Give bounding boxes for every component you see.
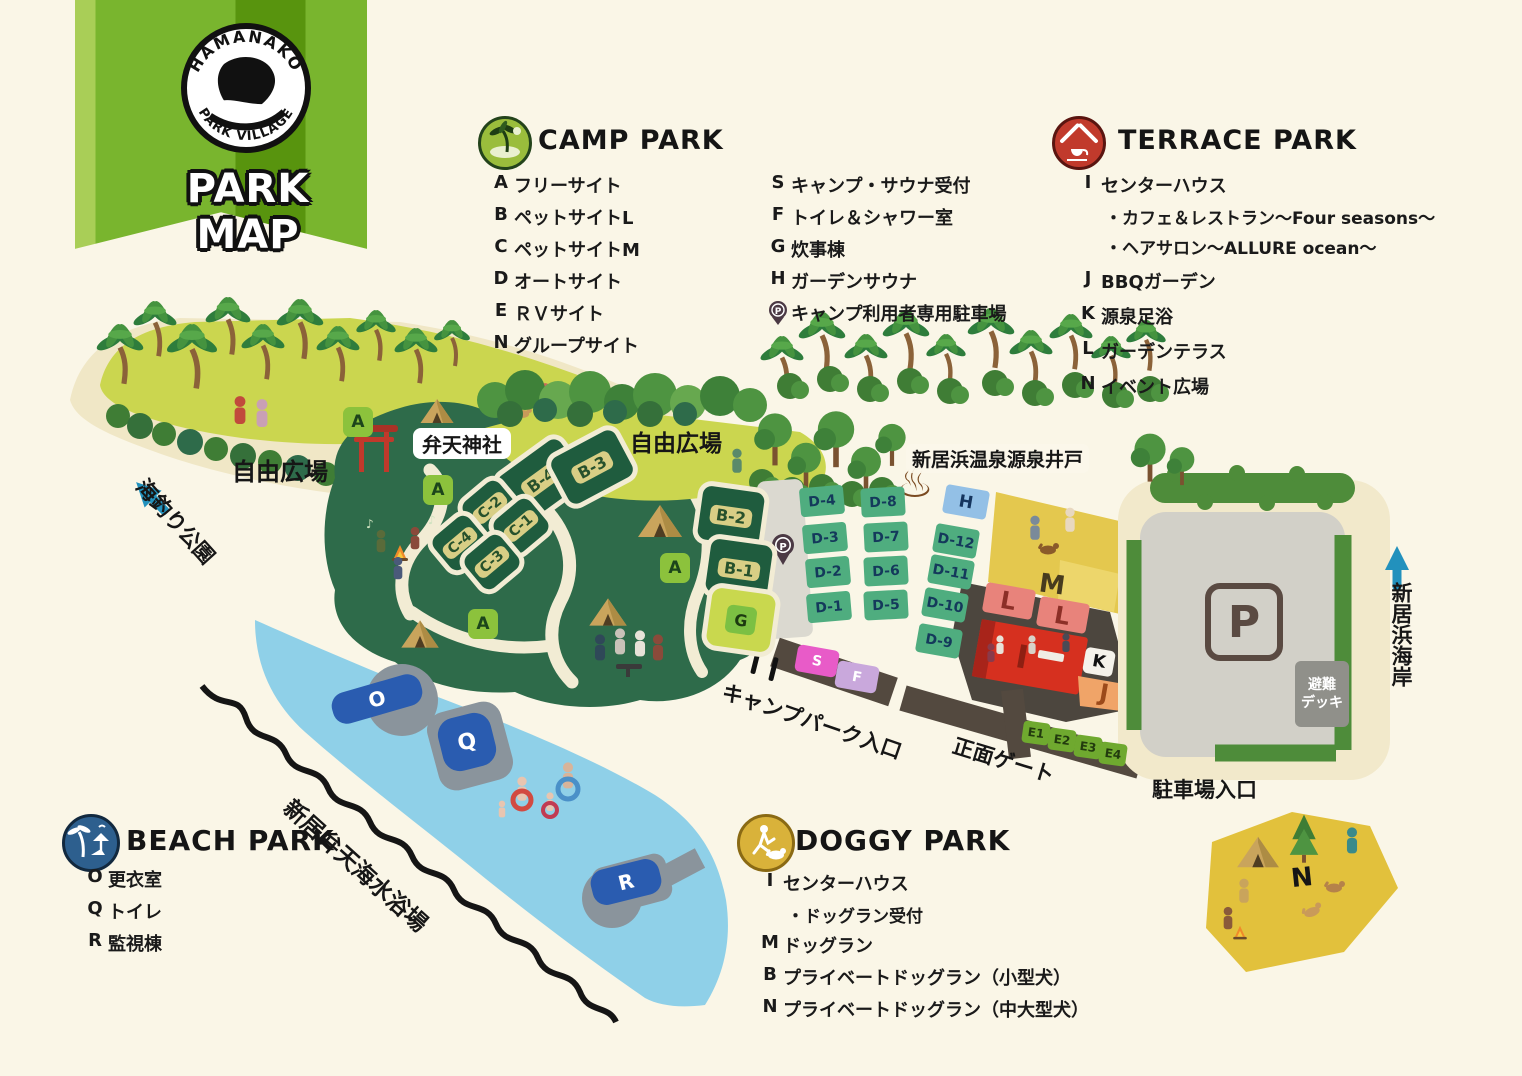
- beach-park-list: O更衣室 Qトイレ R監視棟: [82, 866, 162, 962]
- site-tile-d6: D-6: [863, 555, 908, 586]
- beach-park-icon: [62, 814, 120, 872]
- doggy-park-list: Iセンターハウス ・ドッグラン受付 Mドッグラン Bプライベートドッグラン（小型…: [757, 870, 1089, 1028]
- logo-lake-shape: [218, 57, 275, 107]
- legend-item: Bプライベートドッグラン（小型犬）: [757, 964, 1089, 990]
- label-hot-spring-well: 新居浜温泉源泉井戸: [906, 444, 1089, 473]
- site-tile-d1: D-1: [806, 591, 852, 624]
- legend-item: Fトイレ＆シャワー室: [765, 204, 1006, 230]
- legend-item: Lガーデンテラス: [1075, 338, 1435, 364]
- site-tile-d8: D-8: [860, 486, 905, 517]
- legend-item: Nプライベートドッグラン（中大型犬）: [757, 996, 1089, 1022]
- legend-item: G炊事棟: [765, 236, 1006, 262]
- terrace-park-title: TERRACE PARK: [1118, 125, 1357, 156]
- label-plaza-center: 自由広場: [630, 424, 722, 458]
- legend-item: Nグループサイト: [488, 332, 640, 358]
- parking-pin-icon: P: [765, 300, 791, 326]
- label-plaza-left: 自由広場: [232, 452, 328, 487]
- site-parcel-g: G: [705, 587, 776, 653]
- doggy-park-icon: [737, 814, 795, 872]
- site-badge-a: A: [660, 553, 690, 583]
- beach-park-title: BEACH PARK: [126, 824, 335, 857]
- area-letter-m: M: [1037, 568, 1067, 601]
- site-badge-e4: E4: [1098, 741, 1128, 767]
- site-tile-d7: D-7: [863, 521, 908, 552]
- legend-item: Iセンターハウス: [757, 870, 1089, 896]
- legend-item: Iセンターハウス: [1075, 172, 1435, 198]
- evacuation-deck-badge: 避難デッキ: [1295, 661, 1349, 727]
- svg-text:P: P: [775, 307, 782, 317]
- site-tile-d3: D-3: [802, 522, 848, 555]
- sitting-person: [732, 449, 741, 473]
- park-map-poster: ♪ ♪: [0, 0, 1522, 1076]
- area-letter-n: N: [1290, 862, 1315, 894]
- camp-park-title: CAMP PARK: [538, 125, 724, 156]
- site-badge-a: A: [468, 609, 498, 639]
- label-parking-entrance: 駐車場入口: [1152, 774, 1257, 804]
- legend-item: Sキャンプ・サウナ受付: [765, 172, 1006, 198]
- legend-item: K源泉足浴: [1075, 303, 1435, 329]
- music-note-icon: ♪: [428, 513, 436, 527]
- music-note-icon: ♪: [366, 517, 374, 531]
- legend-item: Dオートサイト: [488, 268, 640, 294]
- legend-item: P キャンプ利用者専用駐車場: [765, 300, 1006, 326]
- legend-subitem: ・カフェ＆レストラン〜Four seasons〜: [1105, 204, 1435, 229]
- poster-title: PARK MAP: [138, 166, 358, 258]
- terrace-park-list: Iセンターハウス ・カフェ＆レストラン〜Four seasons〜 ・ヘアサロン…: [1075, 172, 1435, 405]
- legend-item: BペットサイトL: [488, 204, 640, 230]
- legend-item: CペットサイトM: [488, 236, 640, 262]
- label-coast: 新居浜海岸: [1386, 582, 1416, 687]
- legend-item: EＲＶサイト: [488, 300, 640, 326]
- legend-item: Mドッグラン: [757, 932, 1089, 958]
- site-badge-e2: E2: [1047, 727, 1077, 753]
- legend-subitem: ・ドッグラン受付: [787, 902, 1089, 927]
- camp-park-icon: [478, 116, 532, 170]
- parking-sign: P: [1205, 583, 1283, 661]
- site-badge-a: A: [423, 475, 453, 505]
- site-parcel-b2: B-2: [697, 485, 766, 547]
- label-shrine: 弁天神社: [413, 428, 511, 459]
- legend-item: R監視棟: [82, 930, 162, 956]
- camp-park-list-right: Sキャンプ・サウナ受付 Fトイレ＆シャワー室 G炊事棟 Hガーデンサウナ P キ…: [765, 172, 1006, 332]
- legend-item: Hガーデンサウナ: [765, 268, 1006, 294]
- svg-text:P: P: [779, 542, 786, 553]
- camp-park-list-left: Aフリーサイト BペットサイトL CペットサイトM Dオートサイト EＲＶサイト…: [488, 172, 640, 364]
- terrace-park-icon: [1052, 116, 1106, 170]
- site-tile-d4: D-4: [799, 485, 845, 518]
- legend-item: Nイベント広場: [1075, 373, 1435, 399]
- legend-item: O更衣室: [82, 866, 162, 892]
- park-logo: HAMANAKO PARK VILLAGE: [178, 20, 314, 156]
- legend-item: JBBQガーデン: [1075, 268, 1435, 294]
- doggy-park-title: DOGGY PARK: [795, 824, 1010, 857]
- site-tile-d5: D-5: [863, 589, 908, 620]
- tree-band: [477, 370, 767, 427]
- site-badge-e1: E1: [1021, 720, 1051, 746]
- legend-item: Qトイレ: [82, 898, 162, 924]
- site-badge-a: A: [343, 407, 373, 437]
- legend-item: Aフリーサイト: [488, 172, 640, 198]
- legend-subitem: ・ヘアサロン〜ALLURE ocean〜: [1105, 234, 1435, 259]
- site-tile-d2: D-2: [805, 556, 851, 589]
